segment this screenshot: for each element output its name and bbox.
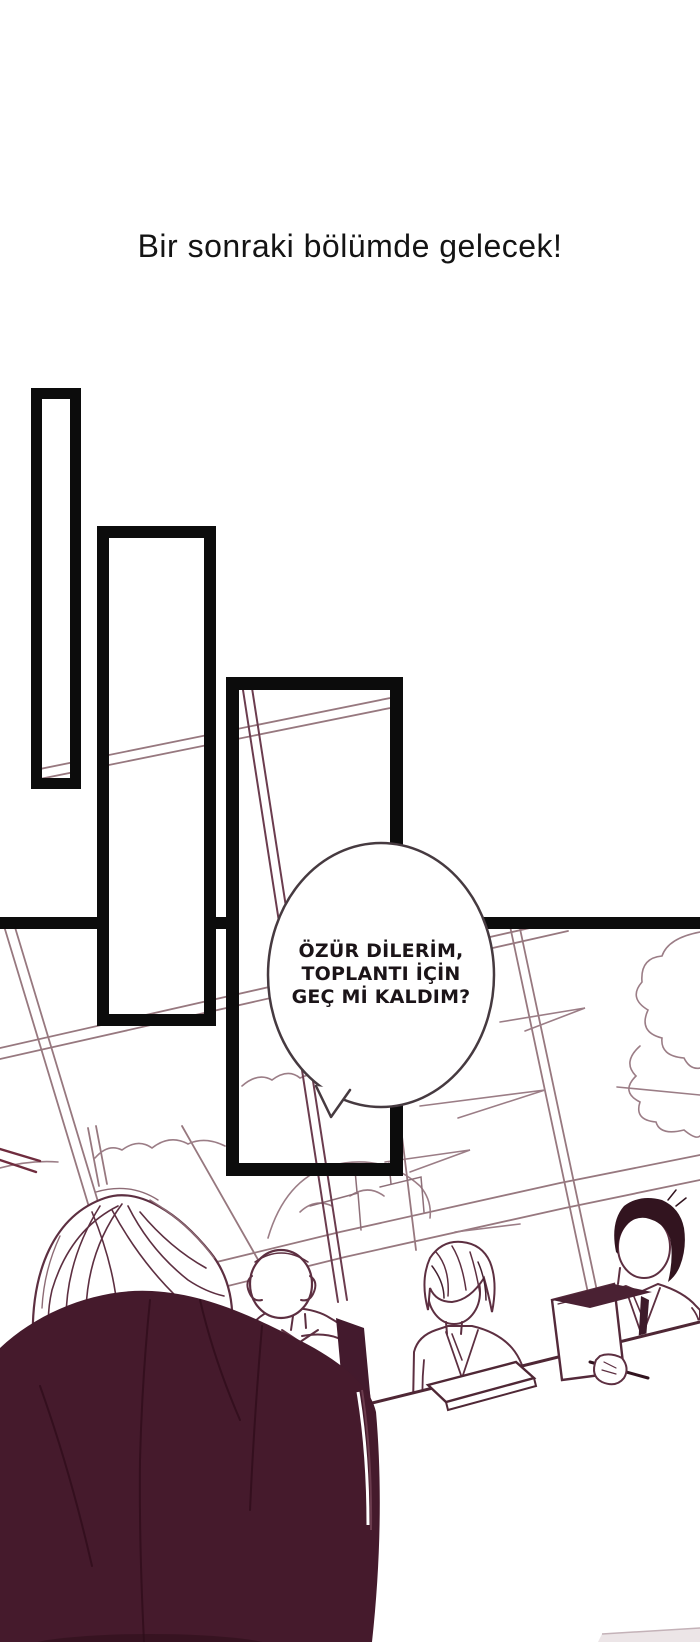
webtoon-page: Bir sonraki bölümde gelecek! ÖZÜR DİLERİ…	[0, 0, 700, 1642]
speech-bubble-text: ÖZÜR DİLERİM, TOPLANTI İÇİN GEÇ Mİ KALDI…	[271, 940, 491, 1009]
speech-line-3: GEÇ Mİ KALDIM?	[271, 986, 491, 1009]
chapter-note: Bir sonraki bölümde gelecek!	[0, 228, 700, 265]
speech-line-2: TOPLANTI İÇİN	[271, 963, 491, 986]
speech-line-1: ÖZÜR DİLERİM,	[271, 940, 491, 963]
